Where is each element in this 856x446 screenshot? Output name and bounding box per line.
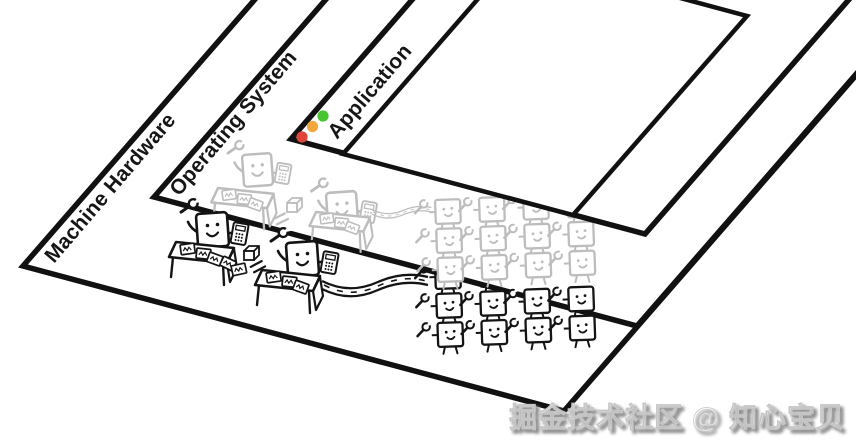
diagram-canvas: Machine Hardware Operating System Applic… — [0, 0, 856, 446]
close-button-icon — [296, 131, 307, 142]
falling-paper — [231, 263, 247, 276]
ghost-package-box — [287, 198, 302, 212]
package-box — [244, 246, 259, 260]
zoom-button-icon — [317, 110, 328, 121]
minimize-button-icon — [307, 121, 318, 132]
watermark: 掘金技术社区 @ 知心宝贝 — [509, 401, 845, 433]
